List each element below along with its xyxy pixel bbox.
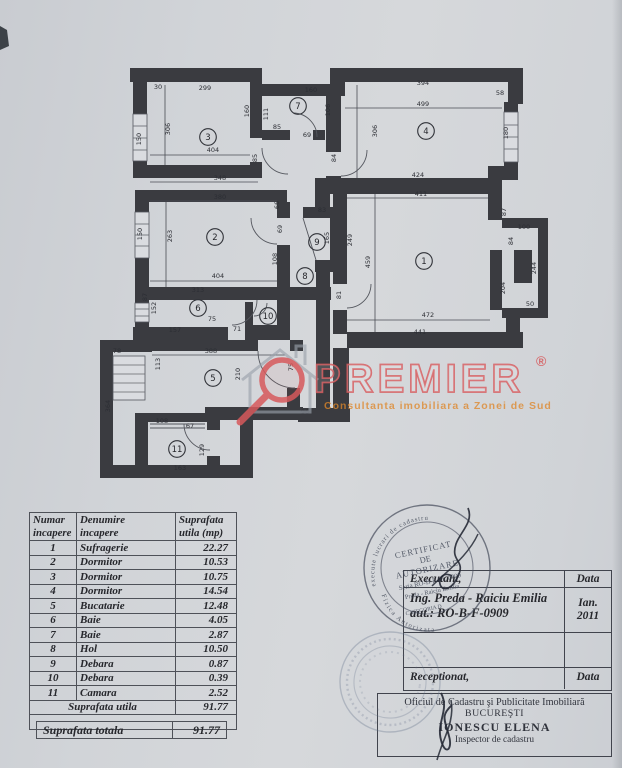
room-area: 2.87 (176, 628, 237, 643)
table-row: 10 Debara 0.39 (30, 671, 237, 686)
room-number: 7 (295, 102, 300, 112)
watermark-tagline: Consultanta imobiliara a Zonei de Sud (324, 400, 552, 412)
dimension-label: 163 (174, 464, 186, 472)
room-area: 0.39 (176, 671, 237, 686)
table-row: 4 Dormitor 14.54 (30, 584, 237, 599)
room-number: 6 (195, 304, 200, 314)
room-index: 6 (30, 613, 77, 628)
room-index: 10 (30, 671, 77, 686)
dimension-label: 244 (530, 262, 538, 274)
executant-table: Executant, Data Ing. Preda - Raiciu Emil… (403, 570, 612, 691)
dimension-label: 306 (164, 123, 172, 135)
table-row: 7 Baie 2.87 (30, 628, 237, 643)
room-name: Hol (77, 642, 176, 657)
room-number: 8 (302, 272, 307, 282)
room-number: 2 (212, 233, 217, 243)
room-area-table: Numar incapere Denumire incapere Suprafa… (29, 512, 237, 730)
table-row: 5 Bucatarie 12.48 (30, 599, 237, 614)
room-index: 3 (30, 570, 77, 585)
executant-detail-row: Ing. Preda - Raiciu Emilia aut.: RO-B-F-… (404, 588, 611, 633)
inspector-title: Inspector de cadastru (378, 735, 611, 745)
room-index: 4 (30, 584, 77, 599)
dimension-label: 424 (412, 171, 424, 179)
dimension-label: 441 (414, 328, 426, 336)
date-month: Ian. (565, 597, 611, 610)
dimension-label: 204 (499, 282, 507, 294)
dimension-label: 404 (212, 272, 224, 280)
dimension-label: 313 (192, 286, 204, 294)
dimension-label: 108 (271, 253, 279, 265)
dimension-label: 100 (518, 223, 530, 231)
table-row: 6 Baie 4.05 (30, 613, 237, 628)
col-header-numar: Numar incapere (30, 513, 77, 541)
dimension-label: 348 (214, 174, 226, 182)
dimension-label: 263 (166, 230, 174, 242)
table-row: 3 Dormitor 10.75 (30, 570, 237, 585)
dimension-label: 67 (186, 422, 194, 430)
dimension-label: 249 (346, 234, 354, 246)
room-area: 10.75 (176, 570, 237, 585)
office-name-line: Oficiul de Cadastru şi Publicitate Imobi… (378, 694, 611, 708)
scanned-cadastral-page: 2993040430615016016011110685693944995830… (0, 0, 622, 768)
dimension-label: 111 (262, 108, 270, 120)
room-name: Bucatarie (77, 599, 176, 614)
dimension-label: 66 (273, 201, 281, 209)
room-name: Dormitor (77, 570, 176, 585)
room-area: 10.50 (176, 642, 237, 657)
room-name: Debara (77, 657, 176, 672)
dimension-label: 459 (364, 256, 372, 268)
dimension-label: 87 (500, 208, 508, 216)
room-index: 1 (30, 541, 77, 556)
room-name: Debara (77, 671, 176, 686)
dimension-label: 499 (417, 100, 429, 108)
inspector-name: IONESCU ELENA (378, 719, 611, 735)
office-city: BUCUREŞTI (378, 708, 611, 719)
executant-authorization: aut.: RO-B-F-0909 (410, 606, 564, 621)
dimension-label: 71 (233, 325, 241, 333)
room-area: 12.48 (176, 599, 237, 614)
room-name: Sufragerie (77, 541, 176, 556)
dimension-label: 129 (198, 444, 206, 456)
room-area: 10.53 (176, 555, 237, 570)
receptionat-label: Receptionat, (404, 668, 565, 689)
dimension-label: 306 (371, 125, 379, 137)
dimension-label: 157 (169, 326, 181, 334)
premier-watermark: PREMIER ® Consultanta imobiliara a Zonei… (240, 346, 552, 422)
room-number: 10 (263, 312, 274, 322)
dimension-label: 150 (136, 228, 144, 240)
table-row: Suprafata utila 91.77 (30, 700, 237, 715)
room-number: 9 (314, 238, 319, 248)
room-name: Dormitor (77, 584, 176, 599)
date-year: 2011 (565, 610, 611, 623)
executant-header-row: Executant, Data (404, 571, 611, 588)
room-index: 5 (30, 599, 77, 614)
subtotal-label: Suprafata utila (30, 700, 176, 715)
dimension-label: 388 (205, 347, 217, 355)
col-header-denumire: Denumire incapere (77, 513, 176, 541)
dimension-label: 84 (507, 237, 515, 245)
dimension-label: 364 (104, 400, 112, 412)
scan-artifact (0, 26, 9, 50)
executant-name-cell: Ing. Preda - Raiciu Emilia aut.: RO-B-F-… (404, 588, 565, 632)
room-area: 22.27 (176, 541, 237, 556)
executant-name: Ing. Preda - Raiciu Emilia (410, 591, 564, 606)
room-area: 14.54 (176, 584, 237, 599)
room-number: 3 (205, 133, 210, 143)
dimension-label: 180 (502, 127, 510, 139)
dimension-label: 152 (150, 302, 158, 314)
dimension-label: 58 (496, 89, 504, 97)
data-label: Data (565, 571, 611, 587)
room-number: 5 (210, 374, 215, 384)
dimension-label: 84 (330, 154, 338, 162)
room-index: 7 (30, 628, 77, 643)
table-row: 2 Dormitor 10.53 (30, 555, 237, 570)
dimension-label: 160 (243, 105, 251, 117)
room-name: Dormitor (77, 555, 176, 570)
date-cell: Ian. 2011 (565, 588, 611, 632)
dimension-label: 50 (526, 300, 534, 308)
empty-row (404, 633, 611, 668)
dimension-label: 69 (303, 131, 311, 139)
dimension-label: 394 (417, 79, 429, 87)
dimension-label: 75 (208, 315, 216, 323)
table-row: 11 Camara 2.52 (30, 686, 237, 701)
dimension-label: 472 (422, 311, 434, 319)
room-index: 11 (30, 686, 77, 701)
data-label-2: Data (565, 668, 611, 689)
total-label: Suprafata totala (37, 722, 173, 739)
dimension-label: 78 (113, 347, 121, 355)
cadastre-office-box: Oficiul de Cadastru şi Publicitate Imobi… (377, 693, 612, 757)
room-name: Camara (77, 686, 176, 701)
dimension-label: 210 (234, 368, 242, 380)
room-area: 4.05 (176, 613, 237, 628)
room-name: Baie (77, 628, 176, 643)
dimension-label: 30 (154, 83, 162, 91)
dimension-label: 160 (305, 86, 317, 94)
col-header-suprafata: Suprafata utila (mp) (176, 513, 237, 541)
total-area-table: Suprafata totala 91.77 (36, 721, 227, 739)
table-row: 8 Hol 10.50 (30, 642, 237, 657)
table-row: 9 Debara 0.87 (30, 657, 237, 672)
room-name: Baie (77, 613, 176, 628)
dimension-label: 69 (276, 225, 284, 233)
executant-label: Executant, (404, 571, 565, 587)
dimension-label: 108 (156, 417, 168, 425)
receptionat-row: Receptionat, Data (404, 668, 611, 689)
room-index: 8 (30, 642, 77, 657)
room-area: 0.87 (176, 657, 237, 672)
dimension-label: 87 (141, 293, 149, 301)
total-value: 91.77 (173, 722, 227, 739)
dimension-label: 380 (214, 193, 226, 201)
dimension-label: 299 (199, 84, 211, 92)
dimension-label: 411 (415, 190, 427, 198)
table-row: 1 Sufragerie 22.27 (30, 541, 237, 556)
dimension-label: 106 (324, 104, 332, 116)
room-index: 2 (30, 555, 77, 570)
dimension-label: 85 (273, 123, 281, 131)
watermark-brand: PREMIER (314, 357, 524, 401)
registered-mark-icon: ® (536, 353, 547, 369)
room-area: 2.52 (176, 686, 237, 701)
dimension-label: 404 (207, 146, 219, 154)
dimension-label: 83 (318, 206, 326, 214)
room-number: 11 (172, 445, 183, 455)
dimension-label: 81 (335, 291, 343, 299)
dimension-label: 85 (251, 154, 259, 162)
dimension-label: 150 (135, 133, 143, 145)
subtotal-value: 91.77 (176, 700, 237, 715)
room-number: 1 (421, 257, 426, 267)
room-number: 4 (423, 127, 428, 137)
dimension-label: 113 (154, 358, 162, 370)
room-index: 9 (30, 657, 77, 672)
